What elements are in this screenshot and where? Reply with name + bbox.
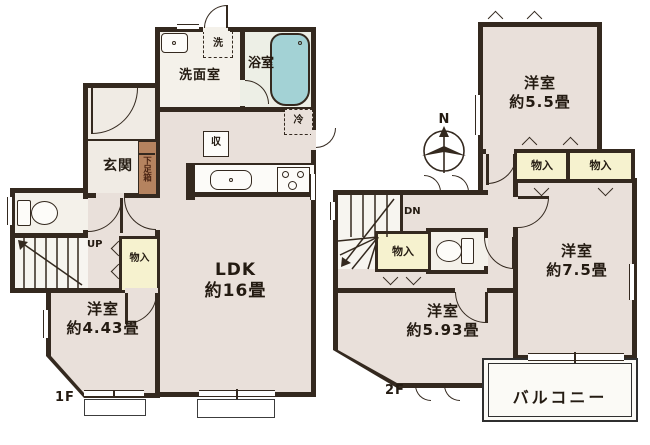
label-bedroom-55: 洋室 約5.5畳 — [480, 74, 600, 112]
label-ldk: LDK 約16畳 — [157, 260, 314, 303]
stairs-1f-icon — [14, 237, 84, 289]
stove — [277, 167, 310, 193]
burner — [288, 181, 297, 190]
casement-window-arc — [415, 385, 431, 401]
floor-plan-canvas: 下足箱 物入 収 冷 洗 — [0, 0, 650, 445]
label-ldk-name: LDK — [157, 260, 314, 281]
window-stairs-2f-west — [330, 202, 336, 220]
label-bedroom-75-name: 洋室 — [520, 242, 634, 261]
kitchen-sink — [210, 170, 252, 190]
toilet-tank-2f — [461, 238, 474, 264]
label-genkan: 玄関 — [88, 158, 148, 176]
toilet-door-leaf-1f — [120, 198, 123, 233]
pantry-label: 収 — [203, 137, 229, 150]
label-bedroom-75: 洋室 約7.5畳 — [520, 242, 634, 280]
window-washroom-north — [177, 24, 199, 30]
toilet-bowl-2f — [436, 240, 462, 262]
basin-dot — [172, 41, 176, 45]
closet-1f-label: 物入 — [121, 253, 158, 266]
sash-tick — [236, 389, 238, 399]
toilet-door-leaf-2f — [512, 237, 515, 269]
label-floor-2f: 2F — [385, 383, 405, 399]
label-bedroom-443-name: 洋室 — [48, 300, 158, 319]
label-balcony: バルコニー — [490, 388, 630, 408]
label-floor-1f: 1F — [55, 390, 75, 406]
front-door-leaf — [91, 88, 93, 134]
kitchen-faucet-dot — [229, 178, 233, 182]
label-bedroom-443: 洋室 約4.43畳 — [48, 300, 158, 338]
label-bedroom-75-size: 約7.5畳 — [520, 261, 634, 280]
window-toilet-1f — [7, 197, 13, 225]
label-bedroom-593-name: 洋室 — [368, 302, 518, 321]
service-door-leaf — [226, 5, 228, 28]
fridge-label: 冷 — [284, 115, 313, 128]
ldk-east-door-arc — [316, 128, 336, 148]
label-bedroom-55-size: 約5.5畳 — [480, 93, 600, 112]
bedroom-55-door-leaf — [486, 154, 489, 185]
kitchen-wall-stub — [186, 163, 195, 200]
burner — [297, 171, 304, 178]
window-balcony — [528, 353, 624, 361]
casement-window-arc — [424, 175, 441, 192]
service-door-arc — [204, 5, 227, 28]
label-up: UP — [87, 239, 102, 252]
wash-basin — [161, 33, 188, 53]
label-closet-2f-a: 物入 — [517, 159, 567, 173]
washer-label: 洗 — [203, 38, 233, 51]
label-closet-2f-b: 物入 — [572, 159, 629, 173]
sash-tick — [574, 352, 576, 363]
window-kitchen-east — [310, 174, 316, 200]
room-ldk — [155, 107, 316, 397]
label-dn: DN — [404, 206, 421, 219]
window-bedroom-443-south — [84, 390, 144, 397]
toilet-bowl-1f — [31, 201, 58, 225]
label-bedroom-593: 洋室 約5.93畳 — [368, 302, 518, 340]
toilet-tank-1f — [17, 200, 31, 226]
label-ldk-size: 約16畳 — [157, 281, 314, 302]
label-bedroom-55-name: 洋室 — [480, 74, 600, 93]
porch-step — [84, 399, 146, 416]
casement-window-arc — [452, 175, 469, 192]
bedroom-75-door-leaf — [518, 196, 549, 199]
casement-window-arc — [444, 385, 460, 401]
label-bath: 浴室 — [243, 56, 279, 72]
label-closet-2f-hall: 物入 — [378, 245, 428, 259]
burner — [282, 171, 289, 178]
porch-step — [197, 399, 275, 418]
door-gap — [488, 190, 513, 195]
label-bedroom-443-size: 約4.43畳 — [48, 319, 158, 338]
sash-tick — [113, 390, 115, 398]
window-ldk-south — [199, 390, 275, 397]
compass-icon — [418, 124, 470, 176]
label-bedroom-593-size: 約5.93畳 — [368, 321, 518, 340]
label-washroom: 洗面室 — [157, 68, 243, 84]
bathtub-drain-dot — [298, 41, 302, 45]
shoe-cabinet-top-cell — [139, 153, 155, 155]
